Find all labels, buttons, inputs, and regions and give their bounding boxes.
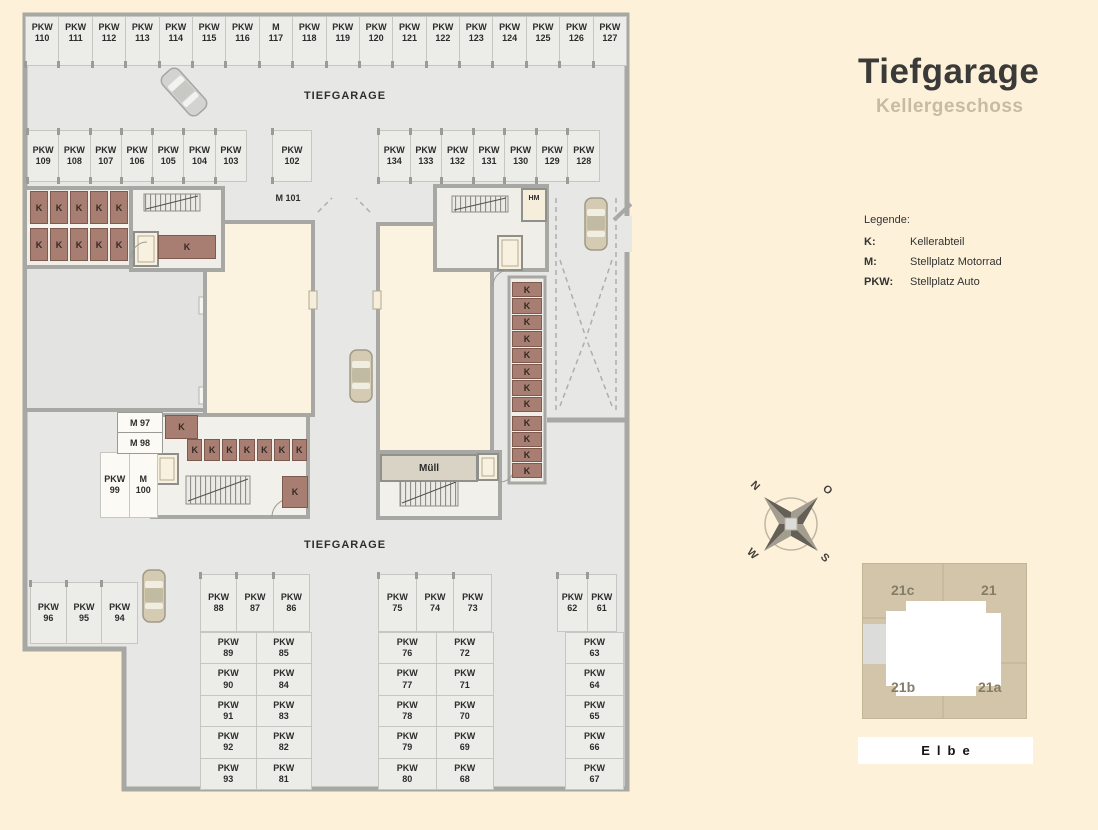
parking-spot-124: PKW124 — [492, 16, 526, 66]
cellar-compartment: K — [90, 228, 108, 261]
parking-spot-114: PKW114 — [159, 16, 193, 66]
parking-spot-83: PKW83 — [257, 696, 312, 726]
legend-key: PKW: — [864, 276, 910, 288]
parking-spot-117: M117 — [259, 16, 293, 66]
legend-row-m: M: Stellplatz Motorrad — [864, 256, 1044, 268]
cellar-compartment: K — [512, 432, 542, 447]
parking-spot-110: PKW110 — [25, 16, 59, 66]
parking-spot-105: PKW105 — [152, 130, 184, 182]
compass-rose: N O S W — [743, 476, 839, 572]
cellar-compartment: K — [30, 191, 48, 224]
parking-spot-93: PKW93 — [201, 759, 256, 789]
parking-spot-107: PKW107 — [90, 130, 122, 182]
parking-spot-109: PKW109 — [27, 130, 59, 182]
parking-spot-120: PKW120 — [359, 16, 393, 66]
parking-spot-69: PKW69 — [437, 727, 494, 757]
parking-spot-102: PKW102 — [272, 130, 312, 182]
parking-spot-91: PKW91 — [201, 696, 256, 726]
parking-group-73-75: PKW75PKW74PKW73 — [378, 574, 492, 632]
parking-spot-127: PKW127 — [593, 16, 627, 66]
cellar-single-core: K — [165, 415, 198, 439]
parking-spot-119: PKW119 — [326, 16, 360, 66]
cellar-compartment: K — [512, 397, 542, 412]
site-plan-quadrant-21b: 21b — [891, 679, 915, 695]
parking-group-86-88: PKW88PKW87PKW86 — [200, 574, 310, 632]
parking-spot-128: PKW128 — [567, 130, 600, 182]
parking-spot-70: PKW70 — [437, 696, 494, 726]
cellar-compartment: K — [512, 448, 542, 463]
parking-group-99-100: PKW99M100 — [100, 452, 158, 518]
hm-room-label: HM — [522, 192, 546, 204]
parking-group-top-row: PKW110PKW111PKW112PKW113PKW114PKW115PKW1… — [25, 16, 627, 66]
cellar-compartment: K — [70, 228, 88, 261]
parking-spot-87: PKW87 — [236, 574, 273, 632]
parking-group-mid-left: PKW109PKW108PKW107PKW106PKW105PKW104PKW1… — [27, 130, 247, 182]
page-title: Tiefgarage — [858, 52, 1039, 92]
cellar-compartment: K — [158, 235, 216, 259]
page-subtitle: Kellergeschoss — [876, 96, 1023, 118]
cellar-compartment: K — [50, 228, 68, 261]
parking-spot-115: PKW115 — [192, 16, 226, 66]
site-plan-quadrant-21: 21 — [981, 582, 997, 598]
car-icon — [585, 198, 607, 250]
legend-key: K: — [864, 236, 910, 248]
legend-value: Kellerabteil — [910, 236, 964, 248]
cellar-wide-left: K — [158, 235, 216, 259]
legend-value: Stellplatz Auto — [910, 276, 980, 288]
car-icon — [350, 350, 372, 402]
cellar-compartment: K — [257, 439, 272, 461]
cellar-row-left-top: KKKKK — [30, 191, 128, 224]
car-icon — [143, 570, 165, 622]
parking-group-94-96: PKW96PKW95PKW94 — [30, 582, 138, 644]
parking-group-81-85-89-93: PKW89PKW85PKW90PKW84PKW91PKW83PKW92PKW82… — [200, 632, 312, 790]
legend-heading: Legende: — [864, 214, 1044, 226]
cellar-compartment: K — [110, 228, 128, 261]
parking-spot-88: PKW88 — [200, 574, 237, 632]
parking-spot-134: PKW134 — [378, 130, 411, 182]
parking-spot-112: PKW112 — [92, 16, 126, 66]
parking-spot-111: PKW111 — [58, 16, 92, 66]
trash-room: Müll — [380, 454, 478, 482]
parking-spot-126: PKW126 — [559, 16, 593, 66]
legend-key: M: — [864, 256, 910, 268]
parking-spot-75: PKW75 — [378, 574, 417, 632]
parking-spot-72: PKW72 — [437, 633, 494, 663]
cellar-compartment: K — [512, 331, 542, 346]
parking-spot-132: PKW132 — [441, 130, 474, 182]
cellar-compartment: K — [90, 191, 108, 224]
river-label-bar: Elbe — [858, 737, 1033, 764]
parking-spot-100: M100 — [129, 452, 159, 518]
parking-spot-103: PKW103 — [215, 130, 247, 182]
parking-spot-129: PKW129 — [536, 130, 569, 182]
cellar-compartment: K — [512, 315, 542, 330]
cellar-compartment: K — [512, 416, 542, 431]
garage-floor-plan: PKW110PKW111PKW112PKW113PKW114PKW115PKW1… — [20, 8, 632, 808]
storage-room — [25, 262, 206, 410]
parking-group-61-62: PKW62PKW61 — [557, 574, 617, 632]
cellar-compartment: K — [282, 476, 308, 508]
parking-spot-71: PKW71 — [437, 664, 494, 694]
parking-spot-84: PKW84 — [257, 664, 312, 694]
parking-group-63-67: PKW63PKW64PKW65PKW66PKW67 — [565, 632, 624, 790]
parking-spot-118: PKW118 — [292, 16, 326, 66]
legend-value: Stellplatz Motorrad — [910, 256, 1002, 268]
parking-spot-122: PKW122 — [426, 16, 460, 66]
parking-spot-81: PKW81 — [257, 759, 312, 789]
site-plan: 21c 21 21b 21a — [862, 563, 1027, 719]
parking-spot-80: PKW80 — [379, 759, 436, 789]
legend-row-k: K: Kellerabteil — [864, 236, 1044, 248]
parking-spot-79: PKW79 — [379, 727, 436, 757]
moto-spot-m101-label: M 101 — [260, 193, 316, 203]
cellar-compartment: K — [165, 415, 198, 439]
cellar-compartment: K — [30, 228, 48, 261]
parking-spot-66: PKW66 — [566, 727, 623, 757]
parking-spot-67: PKW67 — [566, 759, 623, 789]
parking-spot-96: PKW96 — [30, 582, 67, 644]
building-door — [373, 291, 381, 309]
parking-spot-90: PKW90 — [201, 664, 256, 694]
parking-spot-65: PKW65 — [566, 696, 623, 726]
cellar-column-top: KKKKKKKK — [512, 282, 542, 412]
parking-spot-85: PKW85 — [257, 633, 312, 663]
cellar-compartment: K — [222, 439, 237, 461]
cellar-row-core: KKKKKKK — [187, 439, 307, 461]
cellar-compartment: K — [274, 439, 289, 461]
parking-spot-62: PKW62 — [557, 574, 588, 632]
parking-spot-64: PKW64 — [566, 664, 623, 694]
tiefgarage-label-bottom: TIEFGARAGE — [245, 539, 445, 551]
parking-group-68-72-76-80: PKW76PKW72PKW77PKW71PKW78PKW70PKW79PKW69… — [378, 632, 494, 790]
cellar-compartment: K — [50, 191, 68, 224]
parking-spot-74: PKW74 — [416, 574, 455, 632]
cellar-compartment: K — [187, 439, 202, 461]
parking-spot-68: PKW68 — [437, 759, 494, 789]
cellar-compartment: K — [512, 463, 542, 478]
parking-spot-94: PKW94 — [101, 582, 138, 644]
tiefgarage-label-top: TIEFGARAGE — [245, 90, 445, 102]
elevator — [478, 454, 498, 480]
parking-spot-92: PKW92 — [201, 727, 256, 757]
garage-entrance-gap — [623, 216, 632, 252]
parking-spot-76: PKW76 — [379, 633, 436, 663]
parking-spot-106: PKW106 — [121, 130, 153, 182]
moto-spot-m98: M 98 — [117, 432, 163, 454]
parking-spot-104: PKW104 — [183, 130, 215, 182]
parking-spot-130: PKW130 — [504, 130, 537, 182]
parking-spot-123: PKW123 — [459, 16, 493, 66]
cellar-compartment: K — [512, 380, 542, 395]
parking-spot-89: PKW89 — [201, 633, 256, 663]
legend-row-pkw: PKW: Stellplatz Auto — [864, 276, 1044, 288]
elevator — [134, 232, 158, 266]
parking-spot-73: PKW73 — [453, 574, 492, 632]
elevator — [156, 454, 178, 484]
cellar-compartment: K — [110, 191, 128, 224]
parking-spot-113: PKW113 — [125, 16, 159, 66]
parking-spot-78: PKW78 — [379, 696, 436, 726]
legend: Legende: K: Kellerabteil M: Stellplatz M… — [864, 214, 1044, 296]
cellar-compartment: K — [512, 298, 542, 313]
building-door — [309, 291, 317, 309]
parking-spot-86: PKW86 — [273, 574, 310, 632]
site-plan-quadrant-21a: 21a — [978, 679, 1001, 695]
parking-group-mid-right: PKW134PKW133PKW132PKW131PKW130PKW129PKW1… — [378, 130, 600, 182]
parking-spot-125: PKW125 — [526, 16, 560, 66]
parking-spot-131: PKW131 — [473, 130, 506, 182]
cellar-compartment: K — [239, 439, 254, 461]
parking-spot-116: PKW116 — [225, 16, 259, 66]
parking-spot-61: PKW61 — [587, 574, 618, 632]
site-plan-drawing — [863, 564, 1026, 718]
parking-spot-102: PKW102 — [272, 130, 312, 182]
parking-spot-133: PKW133 — [410, 130, 443, 182]
moto-spot-m97: M 97 — [117, 412, 163, 434]
parking-spot-121: PKW121 — [392, 16, 426, 66]
cellar-compartment: K — [512, 348, 542, 363]
elevator — [498, 236, 522, 270]
parking-spot-95: PKW95 — [66, 582, 103, 644]
parking-spot-77: PKW77 — [379, 664, 436, 694]
parking-spot-99: PKW99 — [100, 452, 130, 518]
cellar-column-bottom: KKKK — [512, 416, 542, 478]
cellar-row-left-bottom: KKKKK — [30, 228, 128, 261]
cellar-compartment: K — [512, 282, 542, 297]
parking-spot-108: PKW108 — [58, 130, 90, 182]
parking-spot-63: PKW63 — [566, 633, 623, 663]
cellar-compartment: K — [292, 439, 307, 461]
cellar-compartment: K — [70, 191, 88, 224]
cellar-compartment: K — [512, 364, 542, 379]
parking-spot-82: PKW82 — [257, 727, 312, 757]
site-plan-quadrant-21c: 21c — [891, 582, 914, 598]
cellar-compartment: K — [204, 439, 219, 461]
cellar-single-core-2: K — [282, 476, 308, 508]
